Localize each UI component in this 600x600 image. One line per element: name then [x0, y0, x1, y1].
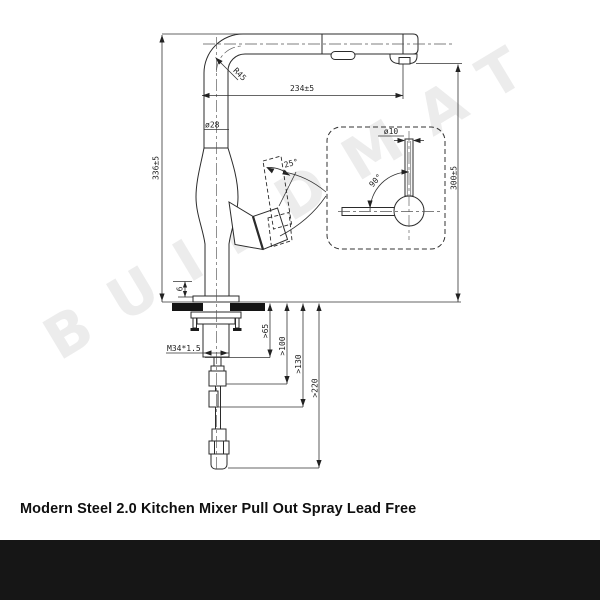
dim-under-counter-4: >220: [228, 304, 322, 469]
supply-hose: [209, 357, 229, 469]
countertop-section-right: [230, 303, 265, 311]
dim-spout-diameter-label: ø28: [205, 121, 220, 130]
inset-detail: 90° ø10: [327, 127, 445, 249]
detail-box: [327, 127, 445, 249]
dim-reach-label: 234±5: [290, 84, 314, 93]
dim-lever-swing-label: 90°: [367, 172, 383, 189]
dim-lever-tilt-label: 25°: [283, 157, 299, 169]
product-title: Modern Steel 2.0 Kitchen Mixer Pull Out …: [20, 501, 416, 517]
base-mount: [162, 296, 461, 357]
dim-base-ring: 6: [173, 282, 193, 298]
dim-height-label: 336±5: [152, 156, 161, 180]
handle-front: 25°: [229, 156, 326, 250]
dim-under-counter-4-label: >220: [311, 378, 320, 397]
dim-under-counter-2-label: >100: [278, 336, 287, 355]
dim-lever-diameter-label: ø10: [384, 127, 399, 136]
dim-outlet-height-label: 300±5: [450, 166, 459, 190]
product-image: BUILDMAT: [0, 0, 600, 600]
dim-bend-radius-label: R45: [231, 66, 248, 83]
technical-drawing: 25°: [0, 0, 600, 500]
spray-head: [390, 54, 417, 64]
dim-thread-label: M34*1.5: [167, 344, 201, 353]
dim-reach: 234±5: [202, 64, 403, 99]
dim-under-counter-3-label: >130: [294, 354, 303, 373]
faucet-body: [196, 34, 418, 296]
dim-under-counter-1-label: >65: [261, 324, 270, 339]
spray-button: [331, 52, 355, 60]
dim-outlet-height: 300±5: [416, 64, 462, 303]
footer-bar: BUILDMAT Villeroy & Boch 1748: [0, 540, 600, 600]
countertop-section-left: [172, 303, 203, 311]
dim-base-ring-label: 6: [176, 286, 185, 291]
